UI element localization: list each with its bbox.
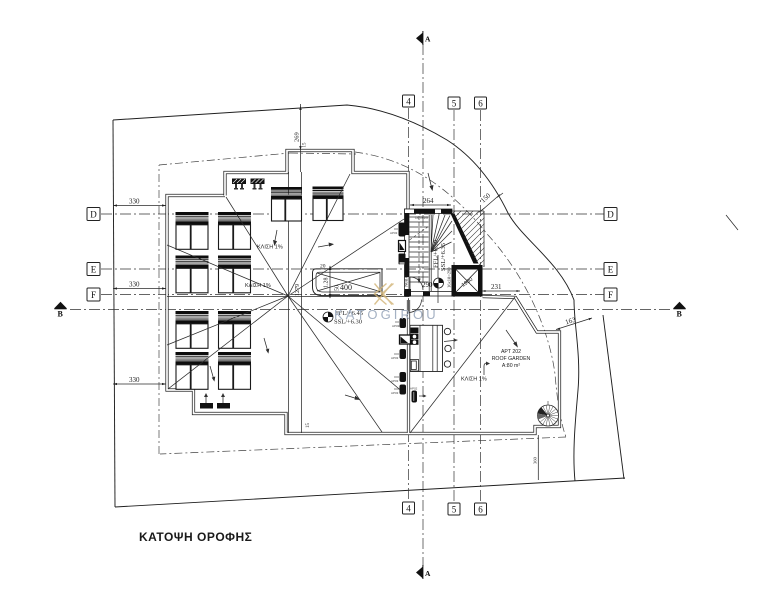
- svg-text:E: E: [91, 265, 97, 275]
- svg-text:20: 20: [320, 264, 326, 270]
- svg-text:290: 290: [422, 281, 433, 289]
- svg-text:1.28: 1.28: [324, 278, 330, 289]
- svg-text:50: 50: [335, 285, 341, 291]
- svg-text:D: D: [607, 210, 614, 220]
- svg-text:AP03: AP03: [391, 391, 399, 395]
- svg-text:B: B: [677, 310, 683, 319]
- svg-text:6: 6: [478, 505, 483, 515]
- svg-text:A: A: [425, 35, 431, 44]
- svg-text:1279: 1279: [295, 284, 301, 296]
- svg-text:B: B: [58, 310, 64, 319]
- svg-text:ΚΑΤΟΨΗ ΟΡΟΦΗΣ: ΚΑΤΟΨΗ ΟΡΟΦΗΣ: [139, 530, 252, 544]
- svg-text:A:80 m²: A:80 m²: [502, 363, 520, 369]
- svg-text:4: 4: [406, 97, 411, 107]
- svg-text:1X 7B1Θ: 1X 7B1Θ: [415, 216, 428, 220]
- svg-text:SSL/+6.35: SSL/+6.35: [440, 243, 447, 271]
- svg-text:AP02: AP02: [410, 387, 418, 391]
- svg-text:15: 15: [306, 423, 311, 429]
- svg-text:D: D: [90, 210, 97, 220]
- svg-text:KATOGIROU: KATOGIROU: [334, 307, 439, 322]
- svg-text:F: F: [91, 290, 96, 300]
- svg-text:330: 330: [129, 281, 140, 289]
- svg-text:APT 202: APT 202: [501, 349, 521, 355]
- svg-text:AP03: AP03: [391, 379, 399, 383]
- svg-text:6: 6: [478, 99, 483, 109]
- svg-text:269: 269: [294, 132, 301, 142]
- svg-text:ΚΛΙΣΗ 1%: ΚΛΙΣΗ 1%: [245, 283, 271, 289]
- svg-text:A: A: [425, 569, 431, 578]
- svg-text:5: 5: [452, 99, 457, 109]
- svg-text:FFL/+6.50: FFL/+6.50: [433, 240, 440, 268]
- svg-text:AP03: AP03: [391, 356, 399, 360]
- svg-text:N0BH: N0BH: [404, 274, 409, 287]
- svg-text:330: 330: [129, 376, 140, 384]
- svg-text:AP03: AP03: [390, 231, 398, 235]
- svg-text:5: 5: [452, 505, 457, 515]
- svg-text:E: E: [608, 265, 614, 275]
- svg-text:231: 231: [491, 283, 502, 291]
- svg-text:ΚΛΙΣΗ 1%: ΚΛΙΣΗ 1%: [257, 245, 283, 251]
- svg-text:15: 15: [303, 142, 308, 148]
- svg-text:330: 330: [129, 198, 140, 206]
- svg-text:ROOF GARDEN: ROOF GARDEN: [492, 356, 531, 362]
- svg-text:264: 264: [423, 197, 434, 205]
- svg-text:400: 400: [340, 283, 352, 292]
- svg-text:360: 360: [533, 457, 538, 465]
- svg-text:4: 4: [406, 504, 411, 514]
- svg-text:ΚΛΙΣΗ 1%: ΚΛΙΣΗ 1%: [461, 377, 487, 383]
- svg-text:F: F: [608, 290, 613, 300]
- svg-text:AP03: AP03: [392, 324, 400, 328]
- svg-text:16x18=290: 16x18=290: [447, 267, 452, 288]
